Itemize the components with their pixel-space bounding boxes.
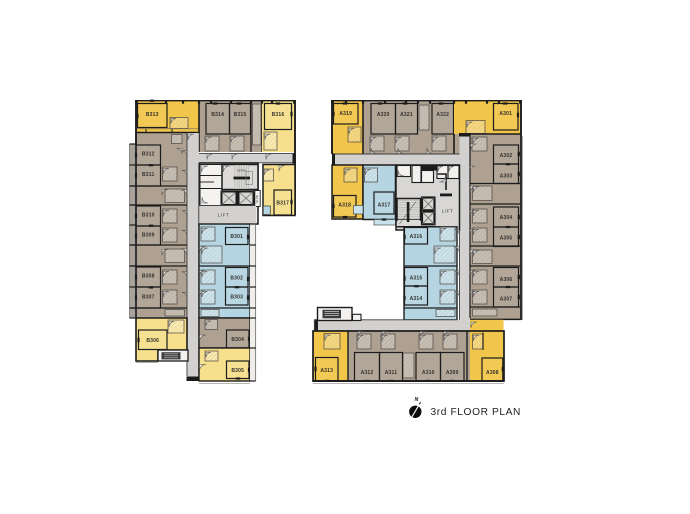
svg-text:A320: A320 bbox=[377, 112, 390, 118]
svg-text:B301: B301 bbox=[230, 234, 243, 240]
svg-text:B308: B308 bbox=[142, 274, 155, 280]
svg-text:B306: B306 bbox=[146, 338, 159, 344]
svg-text:A314: A314 bbox=[410, 296, 423, 302]
svg-text:A307: A307 bbox=[500, 297, 513, 303]
svg-text:B303: B303 bbox=[230, 295, 243, 301]
svg-text:B317: B317 bbox=[276, 201, 289, 207]
svg-text:3rd FLOOR PLAN: 3rd FLOOR PLAN bbox=[431, 407, 522, 418]
svg-text:SLAB: SLAB bbox=[255, 195, 259, 203]
svg-text:A305: A305 bbox=[500, 236, 513, 242]
svg-text:A316: A316 bbox=[410, 234, 423, 240]
svg-text:B312: B312 bbox=[142, 152, 155, 158]
svg-text:A322: A322 bbox=[436, 112, 449, 118]
svg-text:A310: A310 bbox=[422, 370, 435, 376]
svg-text:A319: A319 bbox=[339, 111, 352, 117]
svg-text:B315: B315 bbox=[234, 112, 247, 118]
svg-text:A304: A304 bbox=[500, 215, 513, 221]
svg-text:A308: A308 bbox=[486, 370, 499, 376]
svg-text:B314: B314 bbox=[211, 112, 224, 118]
svg-text:A306: A306 bbox=[500, 277, 513, 283]
svg-text:A317: A317 bbox=[378, 203, 391, 209]
svg-text:N: N bbox=[415, 397, 419, 403]
svg-text:B304: B304 bbox=[231, 337, 244, 343]
svg-text:LIFT: LIFT bbox=[442, 208, 454, 213]
svg-text:A315: A315 bbox=[410, 276, 423, 282]
svg-text:B307: B307 bbox=[142, 295, 155, 301]
svg-text:B309: B309 bbox=[142, 233, 155, 239]
svg-text:B302: B302 bbox=[230, 276, 243, 282]
svg-text:A318: A318 bbox=[338, 203, 351, 209]
svg-text:A301: A301 bbox=[499, 111, 512, 117]
svg-text:A302: A302 bbox=[500, 153, 513, 159]
svg-text:A312: A312 bbox=[361, 370, 374, 376]
svg-text:B316: B316 bbox=[272, 112, 285, 118]
svg-text:LIFT: LIFT bbox=[218, 212, 230, 217]
svg-text:A311: A311 bbox=[385, 370, 397, 376]
svg-text:A321: A321 bbox=[400, 112, 413, 118]
svg-text:A313: A313 bbox=[320, 368, 333, 374]
svg-text:B313: B313 bbox=[146, 112, 159, 118]
svg-text:A303: A303 bbox=[500, 174, 513, 180]
svg-text:B310: B310 bbox=[142, 213, 155, 219]
svg-text:B311: B311 bbox=[142, 172, 154, 178]
svg-text:UP/DN: UP/DN bbox=[237, 168, 246, 172]
svg-text:A309: A309 bbox=[446, 370, 459, 376]
svg-text:B305: B305 bbox=[231, 368, 244, 374]
